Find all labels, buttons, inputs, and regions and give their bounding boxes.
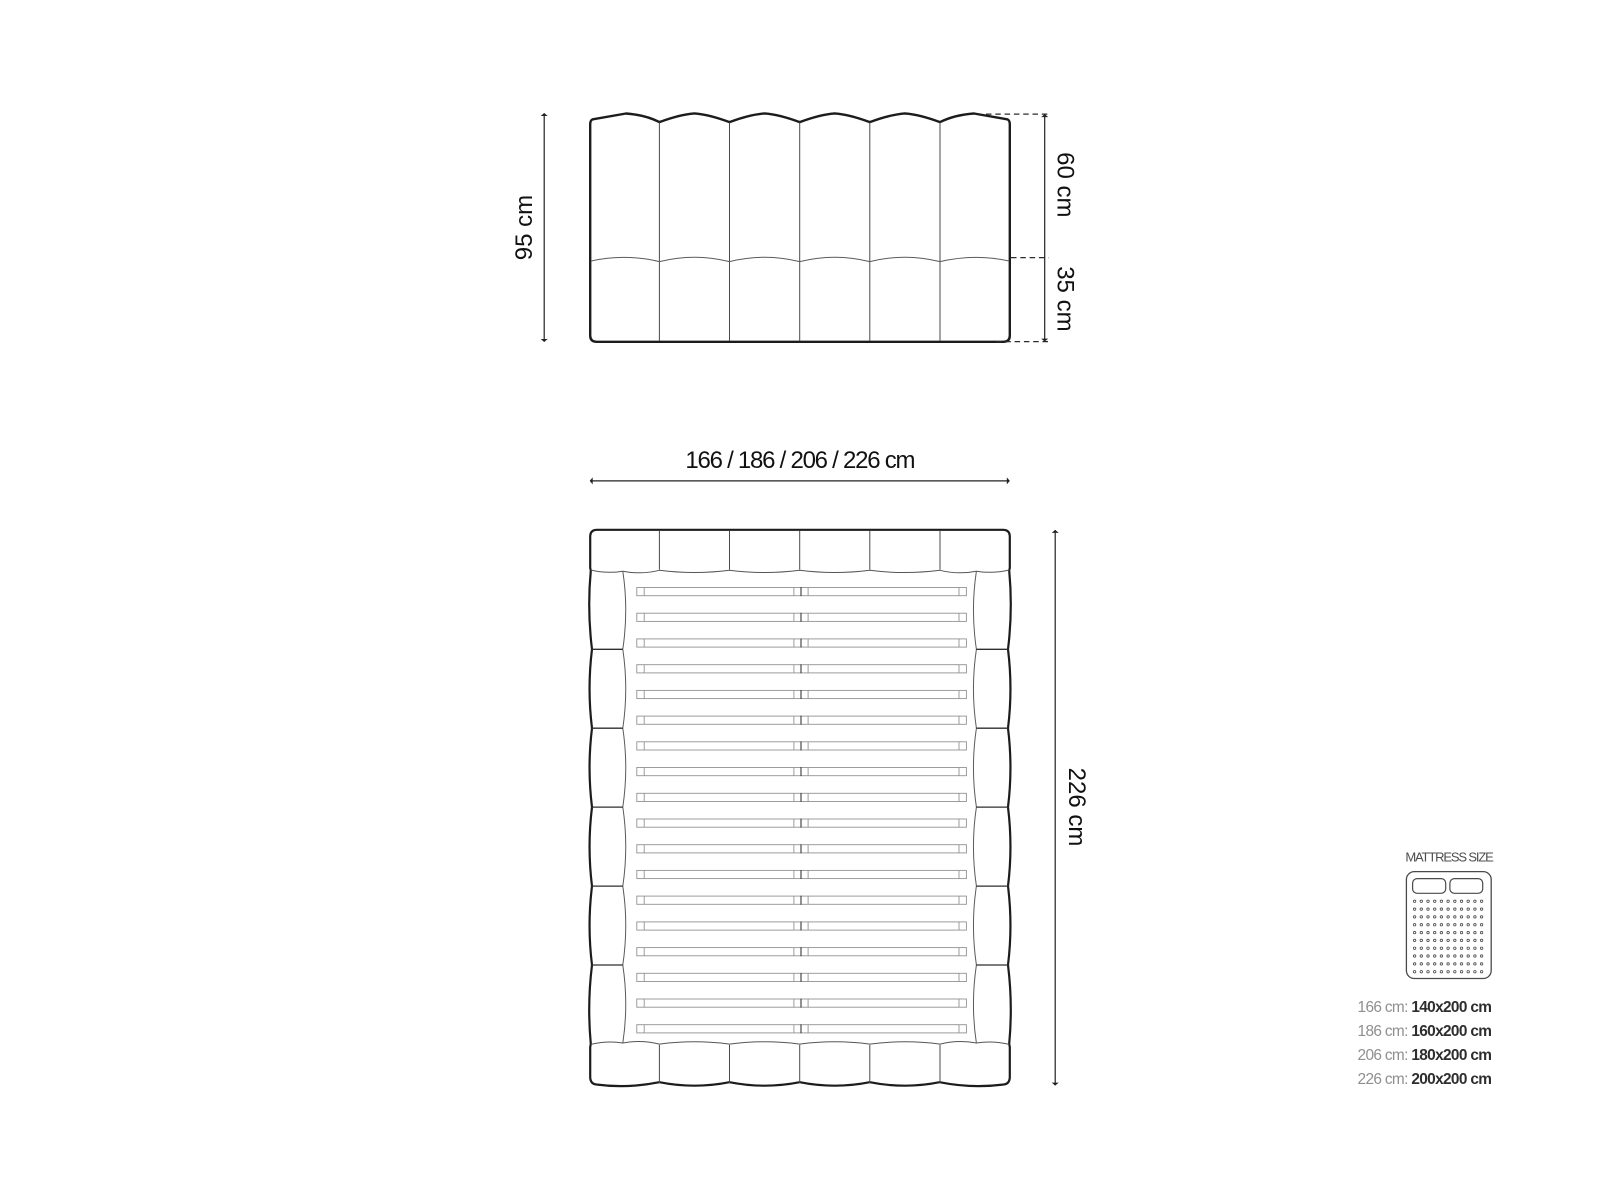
svg-text:226 cm: 200x200 cm: 226 cm: 200x200 cm (1358, 1071, 1492, 1088)
svg-text:MATTRESS SIZE: MATTRESS SIZE (1405, 849, 1494, 864)
svg-text:95 cm: 95 cm (511, 195, 538, 260)
svg-text:166 / 186 / 206 / 226 cm: 166 / 186 / 206 / 226 cm (685, 447, 914, 474)
svg-text:226 cm: 226 cm (1063, 768, 1090, 847)
svg-text:35 cm: 35 cm (1051, 266, 1078, 331)
svg-text:166 cm: 140x200 cm: 166 cm: 140x200 cm (1358, 999, 1492, 1016)
svg-text:60 cm: 60 cm (1051, 152, 1078, 217)
svg-text:206 cm: 180x200 cm: 206 cm: 180x200 cm (1358, 1047, 1492, 1064)
svg-text:186 cm: 160x200 cm: 186 cm: 160x200 cm (1358, 1023, 1492, 1040)
